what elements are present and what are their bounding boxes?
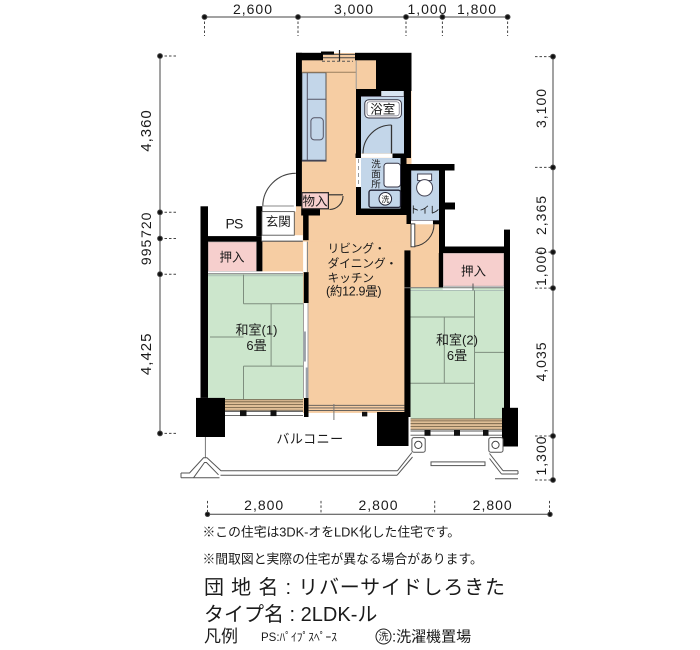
svg-text:リビング・: リビング・ xyxy=(328,242,386,256)
svg-text:2,800: 2,800 xyxy=(473,497,513,513)
svg-text:6畳: 6畳 xyxy=(246,338,266,353)
svg-text:物入: 物入 xyxy=(302,195,328,209)
svg-text:トイレ: トイレ xyxy=(410,206,440,217)
svg-text:和室(2): 和室(2) xyxy=(436,333,478,348)
svg-text:押入: 押入 xyxy=(219,251,245,265)
svg-text:2,365: 2,365 xyxy=(533,195,549,235)
svg-text:洗: 洗 xyxy=(381,194,389,204)
svg-text:4,425: 4,425 xyxy=(138,333,155,376)
svg-text:4,360: 4,360 xyxy=(138,109,155,152)
svg-text:※この住宅は3DK-オをLDK化した住宅です。: ※この住宅は3DK-オをLDK化した住宅です。 xyxy=(203,525,461,540)
svg-text:洗: 洗 xyxy=(379,631,389,643)
svg-text:バルコニー: バルコニー xyxy=(276,432,343,447)
svg-text:PS:ﾊﾟｲﾌﾟｽﾍﾟｰｽ: PS:ﾊﾟｲﾌﾟｽﾍﾟｰｽ xyxy=(261,631,337,644)
svg-text:3,100: 3,100 xyxy=(533,88,549,128)
svg-text:所: 所 xyxy=(371,179,381,190)
svg-text:PS: PS xyxy=(225,216,243,232)
svg-text:4,035: 4,035 xyxy=(533,341,549,381)
svg-text:1,800: 1,800 xyxy=(457,1,497,17)
svg-text:キッチン: キッチン xyxy=(328,271,374,285)
svg-text:995: 995 xyxy=(138,239,154,265)
svg-text:和室(1): 和室(1) xyxy=(236,323,278,338)
svg-text:3,000: 3,000 xyxy=(334,1,374,17)
svg-text:タイプ名 : 2LDK-ル: タイプ名 : 2LDK-ル xyxy=(204,603,377,626)
svg-text:2,600: 2,600 xyxy=(233,1,273,17)
svg-text:押入: 押入 xyxy=(461,265,487,279)
svg-text:玄関: 玄関 xyxy=(266,214,291,229)
svg-text:凡例: 凡例 xyxy=(204,627,238,646)
svg-text::洗濯機置場: :洗濯機置場 xyxy=(392,629,471,646)
svg-text:6畳: 6畳 xyxy=(447,348,467,363)
svg-text:1,300: 1,300 xyxy=(533,435,549,475)
svg-text:720: 720 xyxy=(138,212,154,238)
svg-text:(約12.9畳): (約12.9畳) xyxy=(326,284,381,299)
svg-text:ダイニング・: ダイニング・ xyxy=(328,256,398,270)
svg-text:2,800: 2,800 xyxy=(244,497,284,513)
svg-text:1,000: 1,000 xyxy=(533,246,549,286)
svg-text:団 地 名 : リバーサイドしろきた: 団 地 名 : リバーサイドしろきた xyxy=(204,576,506,599)
svg-text:1,000: 1,000 xyxy=(407,1,447,17)
svg-text:浴室: 浴室 xyxy=(370,102,395,117)
svg-text:※間取図と実際の住宅が異なる場合があります。: ※間取図と実際の住宅が異なる場合があります。 xyxy=(203,552,483,567)
svg-text:2,800: 2,800 xyxy=(358,497,398,513)
